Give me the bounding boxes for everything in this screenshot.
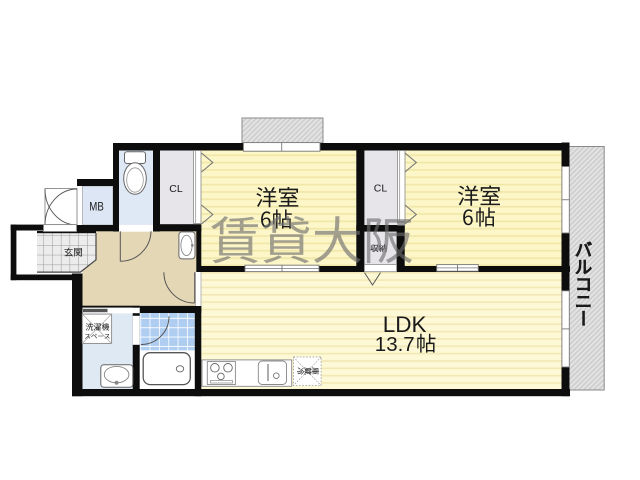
svg-text:CL: CL (374, 183, 388, 195)
svg-text:MB: MB (89, 199, 104, 213)
svg-text:13.7: 13.7 (375, 333, 415, 356)
svg-text:CL: CL (169, 183, 183, 195)
